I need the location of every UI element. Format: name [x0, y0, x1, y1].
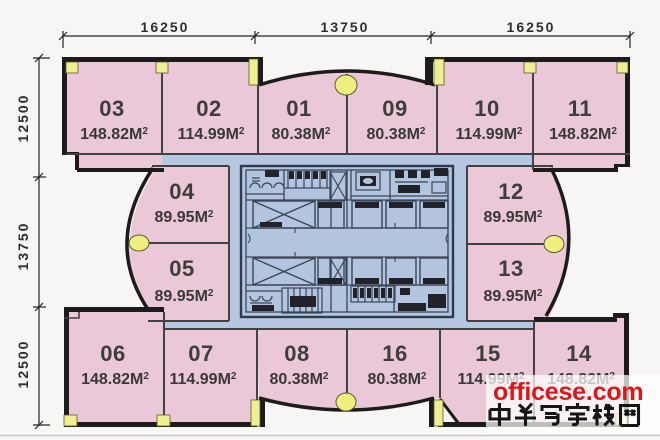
svg-text:89.95M2: 89.95M2: [484, 209, 543, 226]
svg-text:114.99M2: 114.99M2: [178, 126, 245, 143]
svg-text:10: 10: [474, 96, 499, 121]
svg-text:80.38M2: 80.38M2: [270, 371, 329, 388]
svg-text:12: 12: [498, 179, 523, 204]
svg-text:80.38M2: 80.38M2: [272, 126, 331, 143]
svg-text:09: 09: [382, 96, 407, 121]
svg-text:114.99M2: 114.99M2: [170, 371, 237, 388]
svg-text:02: 02: [196, 96, 221, 121]
svg-text:03: 03: [99, 96, 124, 121]
svg-text:16250: 16250: [141, 19, 190, 35]
svg-text:05: 05: [169, 256, 194, 281]
svg-text:89.95M2: 89.95M2: [155, 209, 214, 226]
svg-text:11: 11: [568, 96, 592, 121]
svg-text:148.82M2: 148.82M2: [81, 371, 149, 388]
svg-text:14: 14: [566, 341, 592, 366]
svg-text:148.82M2: 148.82M2: [549, 126, 617, 143]
svg-text:13: 13: [498, 256, 523, 281]
svg-text:148.82M2: 148.82M2: [80, 126, 148, 143]
svg-text:16: 16: [382, 341, 407, 366]
svg-text:01: 01: [286, 96, 311, 121]
svg-text:80.38M2: 80.38M2: [368, 371, 427, 388]
svg-text:07: 07: [188, 341, 213, 366]
svg-text:13750: 13750: [321, 19, 370, 35]
svg-text:08: 08: [284, 341, 309, 366]
svg-text:15: 15: [475, 341, 500, 366]
svg-text:80.38M2: 80.38M2: [367, 126, 426, 143]
svg-text:114.99M2: 114.99M2: [456, 126, 523, 143]
svg-text:16250: 16250: [507, 19, 556, 35]
svg-text:13750: 13750: [15, 222, 31, 271]
svg-text:officese.com: officese.com: [493, 378, 643, 406]
svg-text:04: 04: [169, 179, 195, 204]
svg-text:89.95M2: 89.95M2: [155, 288, 214, 305]
svg-text:12500: 12500: [15, 340, 31, 389]
svg-text:89.95M2: 89.95M2: [484, 288, 543, 305]
svg-text:12500: 12500: [15, 94, 31, 143]
svg-text:06: 06: [100, 341, 125, 366]
